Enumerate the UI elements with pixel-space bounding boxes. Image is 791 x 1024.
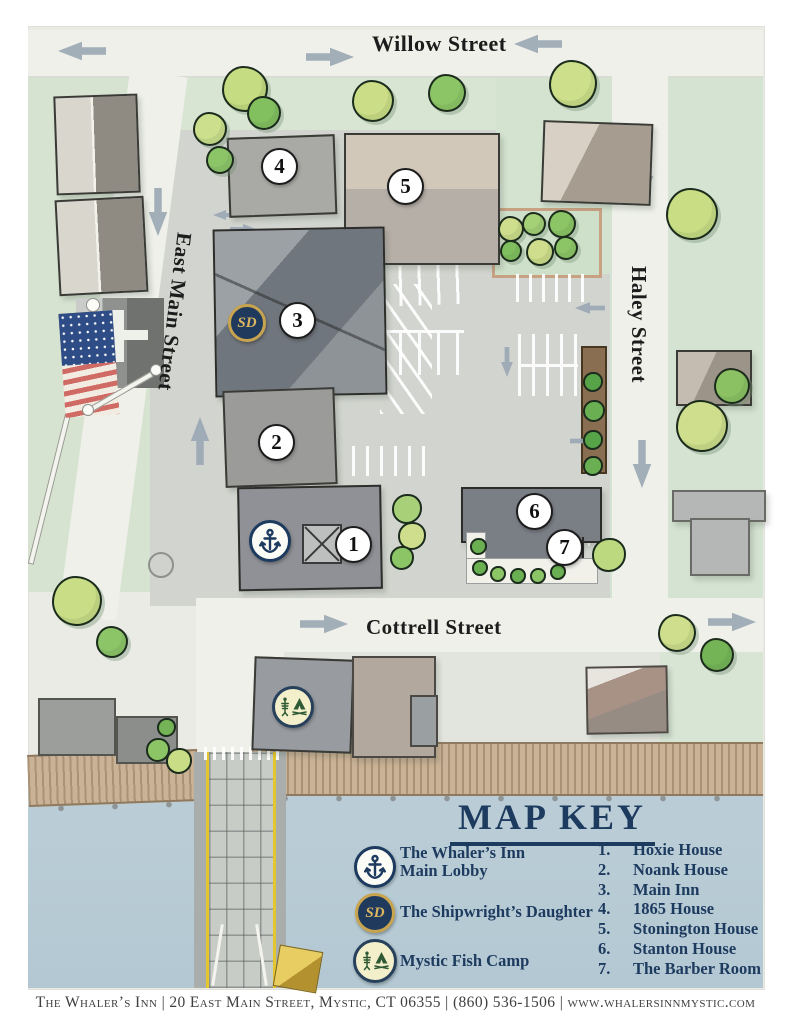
map-page: SD xyxy=(0,0,791,1024)
tree xyxy=(676,400,728,452)
garden-tree xyxy=(522,212,546,236)
map-key-panel: MAP KEY The Whaler’s Inn Main Lobby SD T… xyxy=(340,796,764,988)
tree xyxy=(206,146,234,174)
map-marker-1: 1 xyxy=(335,526,372,563)
parking-stripes-grid xyxy=(518,334,578,396)
key-item-2: 2.Noank House xyxy=(598,862,761,879)
map-key-numbered-list: 1.Hoxie House 2.Noank House 3.Main Inn 4… xyxy=(598,842,761,981)
key-item-label: 1865 House xyxy=(633,901,714,918)
building-southwest-1 xyxy=(38,698,116,756)
tree xyxy=(352,80,394,122)
footer-contact-line: The Whaler’s Inn | 20 East Main Street, … xyxy=(0,994,791,1012)
map-marker-6: 6 xyxy=(516,493,553,530)
building-northwest-2 xyxy=(55,196,149,297)
building-northwest-1 xyxy=(53,94,140,196)
tree xyxy=(700,638,734,672)
key-item-num: 6. xyxy=(598,941,622,958)
flagpole-base xyxy=(148,552,174,578)
legend-label-line1: The Whaler’s Inn xyxy=(400,844,525,862)
legend-label-line2: Main Lobby xyxy=(400,862,525,880)
bridge-counterweight xyxy=(273,944,324,993)
flagpole-ball-left xyxy=(82,404,94,416)
key-item-label: Hoxie House xyxy=(633,842,722,859)
tree xyxy=(52,576,102,626)
anchor-glyph xyxy=(259,528,281,554)
building-waterfront-gabled xyxy=(585,665,668,734)
map-marker-5: 5 xyxy=(387,168,424,205)
tree xyxy=(193,112,227,146)
tree xyxy=(666,188,718,240)
tree xyxy=(714,368,750,404)
anchor-icon xyxy=(249,520,291,562)
anchor-glyph xyxy=(364,854,386,880)
building-northeast-hip xyxy=(541,120,654,206)
haley-street-label: Haley Street xyxy=(626,266,651,383)
garden-tree xyxy=(548,210,576,238)
flagpole-ball-top xyxy=(86,298,100,312)
key-item-6: 6.Stanton House xyxy=(598,941,761,958)
key-item-1: 1.Hoxie House xyxy=(598,842,761,859)
key-item-3: 3.Main Inn xyxy=(598,882,761,899)
tree xyxy=(96,626,128,658)
key-item-label: Stanton House xyxy=(633,941,736,958)
key-item-label: The Barber Room xyxy=(633,961,761,978)
tree xyxy=(428,74,466,112)
sd-monogram-text: SD xyxy=(237,315,256,332)
flag-canton xyxy=(58,310,115,366)
fish-camp-icon xyxy=(353,939,397,983)
parking-stripes xyxy=(516,274,592,302)
fish-camp-glyph xyxy=(278,696,308,718)
key-item-label: Stonington House xyxy=(633,921,758,938)
fish-camp-icon xyxy=(272,686,314,728)
anchor-icon xyxy=(354,846,396,888)
key-item-num: 1. xyxy=(598,842,622,859)
building-east-t-stem xyxy=(690,518,750,576)
map-marker-4: 4 xyxy=(261,148,298,185)
drawbridge xyxy=(194,752,286,988)
key-item-label: Noank House xyxy=(633,862,728,879)
parking-stripes-diagonal xyxy=(380,284,432,414)
map-marker-7: 7 xyxy=(546,529,583,566)
garden-tree xyxy=(526,238,554,266)
map-key-title: MAP KEY xyxy=(340,796,764,838)
garden-tree xyxy=(554,236,578,260)
building-waterfront-small xyxy=(410,695,438,747)
fish-camp-glyph xyxy=(360,950,390,972)
map-marker-2: 2 xyxy=(258,424,295,461)
key-item-num: 2. xyxy=(598,862,622,879)
sd-monogram-text: SD xyxy=(365,905,384,922)
tree xyxy=(549,60,597,108)
parking-stripes xyxy=(352,446,428,476)
legend-label-shipwrights: The Shipwright’s Daughter xyxy=(400,902,593,922)
cottrell-street-label: Cottrell Street xyxy=(366,615,502,640)
garden-tree xyxy=(500,240,522,262)
map-marker-3: 3 xyxy=(279,302,316,339)
key-item-num: 3. xyxy=(598,882,622,899)
key-item-num: 7. xyxy=(598,961,622,978)
key-item-5: 5.Stonington House xyxy=(598,921,761,938)
key-item-4: 4.1865 House xyxy=(598,901,761,918)
key-item-num: 5. xyxy=(598,921,622,938)
willow-street-label: Willow Street xyxy=(372,31,507,57)
key-item-num: 4. xyxy=(598,901,622,918)
tree xyxy=(658,614,696,652)
legend-label-fish-camp: Mystic Fish Camp xyxy=(400,951,529,971)
key-item-label: Main Inn xyxy=(633,882,699,899)
us-flag xyxy=(58,310,119,418)
sd-monogram-icon: SD xyxy=(355,893,395,933)
tree xyxy=(247,96,281,130)
key-item-7: 7.The Barber Room xyxy=(598,961,761,978)
legend-label-lobby: The Whaler’s Inn Main Lobby xyxy=(400,844,525,880)
garden-tree xyxy=(498,216,524,242)
sd-monogram-icon: SD xyxy=(228,304,266,342)
